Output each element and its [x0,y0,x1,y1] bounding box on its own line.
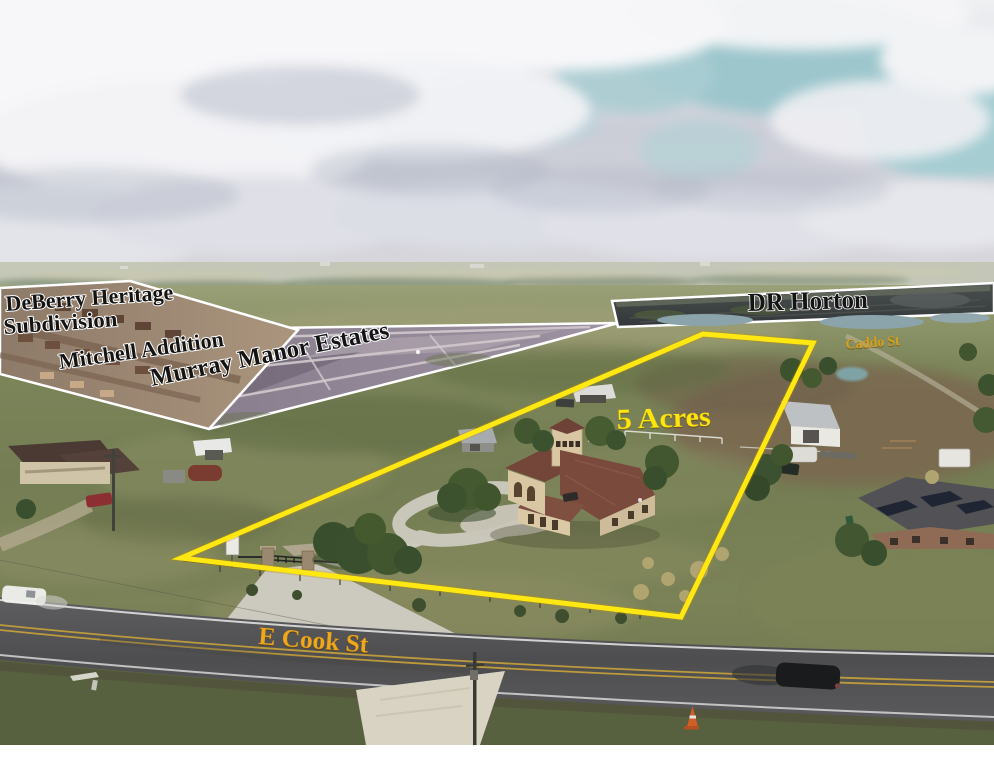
suv-body [775,662,840,690]
house-shadow [490,521,660,549]
distant-field [30,272,270,280]
aerial-listing-photo: DeBerry Heritage Subdivision Mitchell Ad… [0,0,994,768]
cloud [770,80,990,160]
tree [532,430,554,452]
tree [802,368,822,388]
tree [959,343,977,361]
dr-horton-label: DR Horton [747,285,868,317]
pole-transformer [470,670,478,680]
tree [861,540,887,566]
tree [643,466,667,490]
cloud-shadow [180,65,420,125]
red-quonset-shed [188,465,222,481]
barn-opening [205,450,223,460]
hay-barn-opening [580,395,606,403]
parked-car [416,350,420,354]
tree [354,513,386,545]
dirt-pile [890,292,970,308]
photo-bottom-margin [0,745,994,768]
truck-window [26,590,36,598]
utility-pole [112,449,115,531]
gray-shed [163,470,185,483]
barn-opening [803,430,819,443]
acreage-label: 5 Acres [616,402,711,436]
cloud-shadow [650,168,890,212]
pond [657,314,753,326]
pole-crossarm [104,455,122,458]
pond [930,313,990,323]
pond [836,367,868,381]
tree [473,483,501,511]
clouds [0,0,994,275]
shed-door [470,444,480,451]
tree [771,444,793,466]
tree [437,483,467,513]
aerial-photo-canvas: DeBerry Heritage Subdivision Mitchell Ad… [0,0,994,768]
satellite-dish [638,498,642,502]
pond [820,315,924,329]
white-box-trailer [939,449,970,467]
tree [394,546,422,574]
tree [16,499,36,519]
cone-base [684,726,699,730]
tree [819,357,837,375]
distant-field [340,270,660,278]
distant-field [730,268,970,276]
